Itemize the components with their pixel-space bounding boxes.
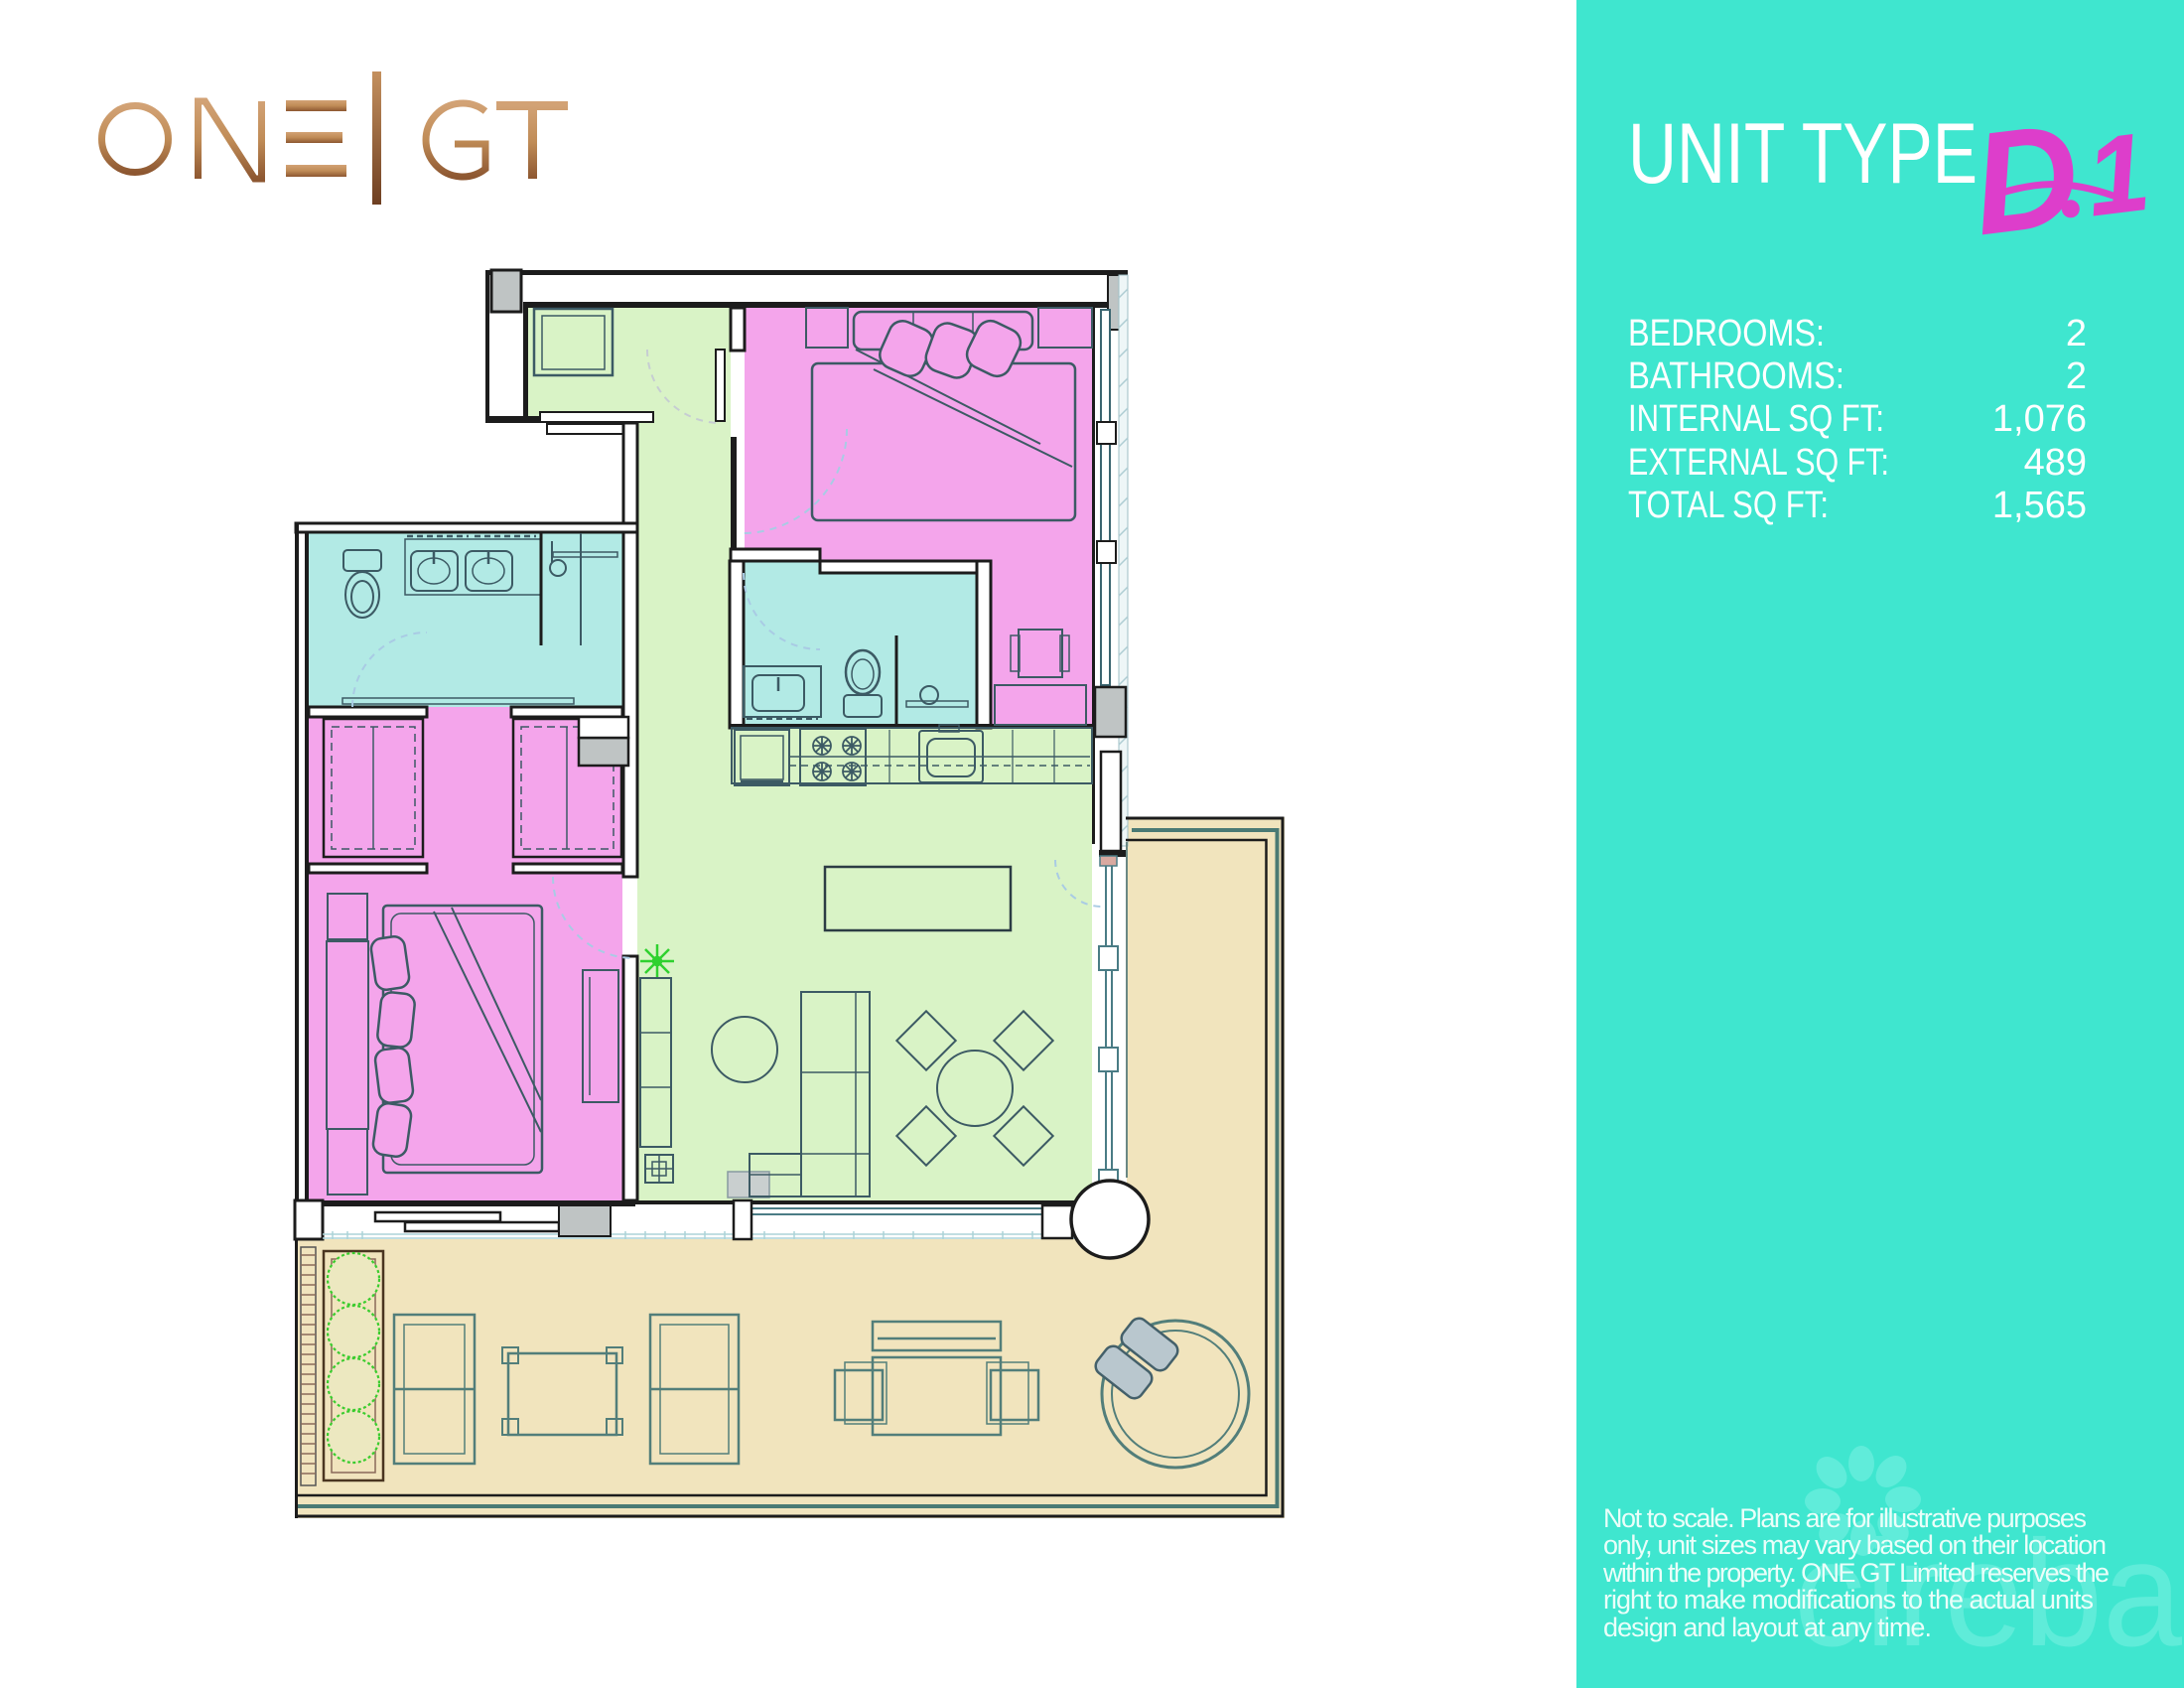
svg-text:EXTERNAL SQ FT:: EXTERNAL SQ FT: [1628,442,1889,484]
svg-text:D: D [1964,92,2088,266]
svg-text:INTERNAL SQ FT:: INTERNAL SQ FT: [1628,398,1884,440]
svg-text:Not to scale. Plans are for il: Not to scale. Plans are for illustrative… [1603,1503,2087,1533]
svg-text:1,565: 1,565 [1992,485,2087,526]
svg-text:2: 2 [2066,355,2087,397]
svg-text:design and layout at any time.: design and layout at any time. [1603,1613,1932,1642]
svg-text:BATHROOMS:: BATHROOMS: [1628,355,1844,397]
svg-text:only, unit sizes may vary base: only, unit sizes may vary based on their… [1603,1530,2107,1560]
svg-text:within the property. ONE GT Li: within the property. ONE GT Limited rese… [1602,1558,2110,1588]
svg-text:TOTAL SQ FT:: TOTAL SQ FT: [1628,485,1829,526]
svg-text:BEDROOMS:: BEDROOMS: [1628,313,1825,354]
svg-text:UNIT TYPE: UNIT TYPE [1628,106,1978,202]
svg-text:right to make modifications to: right to make modifications to the actua… [1603,1585,2094,1615]
svg-text:1,076: 1,076 [1992,398,2087,440]
svg-text:2: 2 [2066,313,2087,354]
svg-text:489: 489 [2024,442,2087,484]
